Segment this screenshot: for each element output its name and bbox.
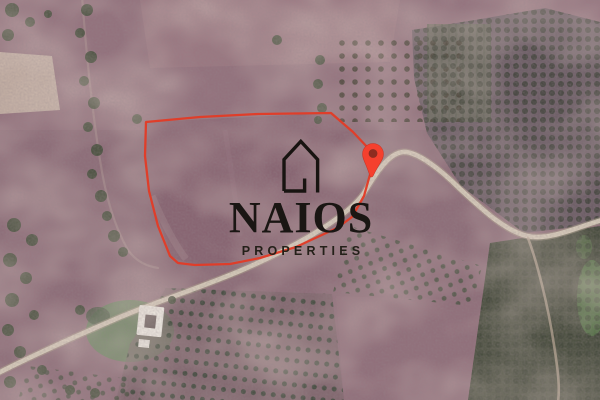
house-outline-icon	[281, 138, 321, 194]
brand-tagline: PROPERTIES	[229, 244, 373, 258]
property-listing-image: NAIOS PROPERTIES	[0, 0, 600, 400]
brand-watermark: NAIOS PROPERTIES	[229, 138, 373, 258]
brand-name: NAIOS	[229, 196, 373, 240]
